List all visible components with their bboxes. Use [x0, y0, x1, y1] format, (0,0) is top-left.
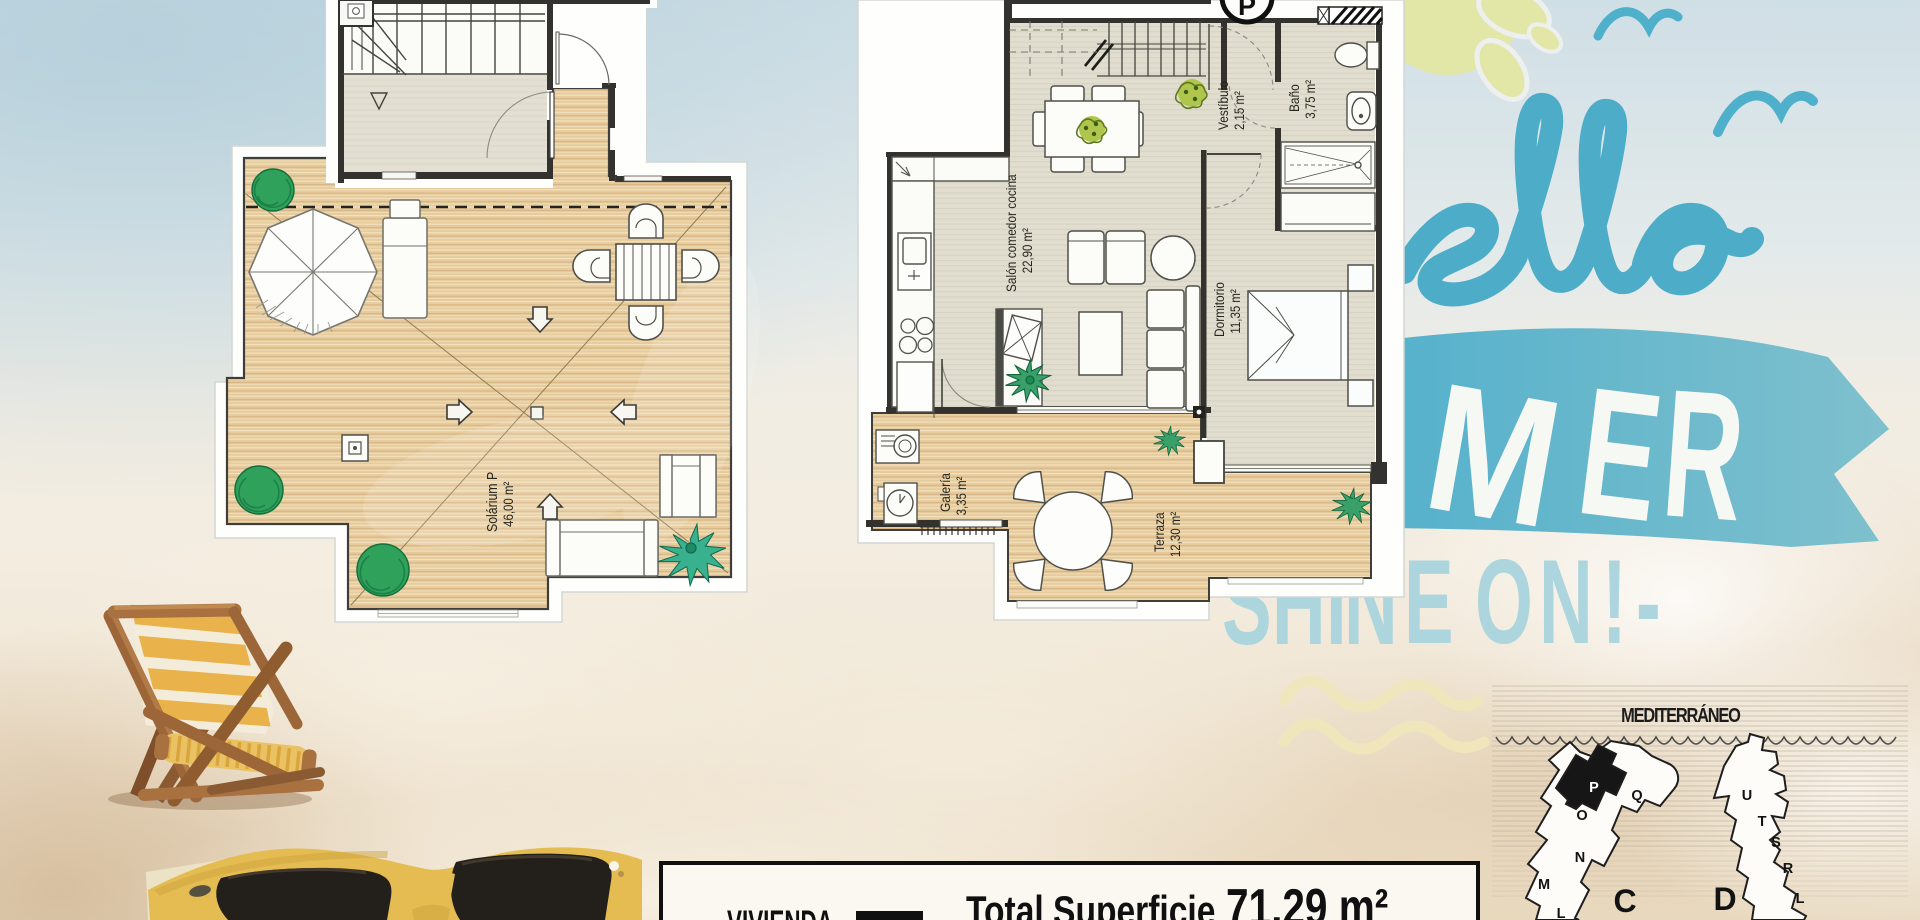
svg-text:12,30 m²: 12,30 m² [1168, 512, 1183, 557]
svg-text:P: P [1238, 0, 1256, 21]
svg-text:Solárium P: Solárium P [484, 472, 500, 532]
svg-text:Vestíbulo: Vestíbulo [1215, 81, 1231, 130]
svg-text:C: C [1613, 883, 1636, 919]
svg-text:Baño: Baño [1286, 84, 1302, 112]
svg-text:3,75 m²: 3,75 m² [1303, 80, 1318, 119]
svg-text:Salón comedor cocina: Salón comedor cocina [1003, 174, 1019, 292]
svg-text:Dormitorio: Dormitorio [1211, 282, 1227, 337]
svg-text:Terraza: Terraza [1151, 512, 1167, 552]
svg-text:O: O [1576, 808, 1587, 824]
svg-text:L: L [1557, 906, 1566, 920]
svg-text:R: R [1657, 350, 1750, 559]
svg-text:U: U [1742, 788, 1752, 804]
svg-text:Galería: Galería [937, 472, 953, 512]
svg-text:2,15 m²: 2,15 m² [1232, 91, 1247, 130]
svg-text:-: - [1636, 536, 1661, 669]
svg-text:Total Superficie: Total Superficie [966, 889, 1215, 920]
svg-text:N: N [1539, 536, 1593, 669]
svg-text:M: M [1538, 877, 1550, 893]
svg-text:T: T [1758, 814, 1767, 830]
svg-text:!: ! [1602, 536, 1627, 669]
svg-text:D: D [1713, 881, 1736, 917]
svg-text:46,00 m²: 46,00 m² [501, 482, 516, 527]
svg-text:E: E [1404, 536, 1454, 669]
svg-text:3,35 m²: 3,35 m² [954, 477, 969, 516]
svg-text:VIVIENDA: VIVIENDA [727, 904, 833, 920]
svg-text:11,35 m²: 11,35 m² [1228, 289, 1243, 333]
svg-text:S: S [1771, 835, 1781, 851]
svg-text:22,90 m²: 22,90 m² [1020, 228, 1035, 273]
svg-text:P: P [1589, 780, 1599, 796]
svg-text:L: L [1796, 891, 1805, 907]
svg-text:R: R [1783, 861, 1794, 877]
svg-text:N: N [1575, 850, 1585, 866]
svg-text:Q: Q [1631, 788, 1642, 804]
svg-text:71,29 m²: 71,29 m² [1226, 878, 1388, 920]
svg-text:O: O [1475, 536, 1533, 669]
svg-text:MEDITERRÁNEO: MEDITERRÁNEO [1621, 703, 1741, 726]
